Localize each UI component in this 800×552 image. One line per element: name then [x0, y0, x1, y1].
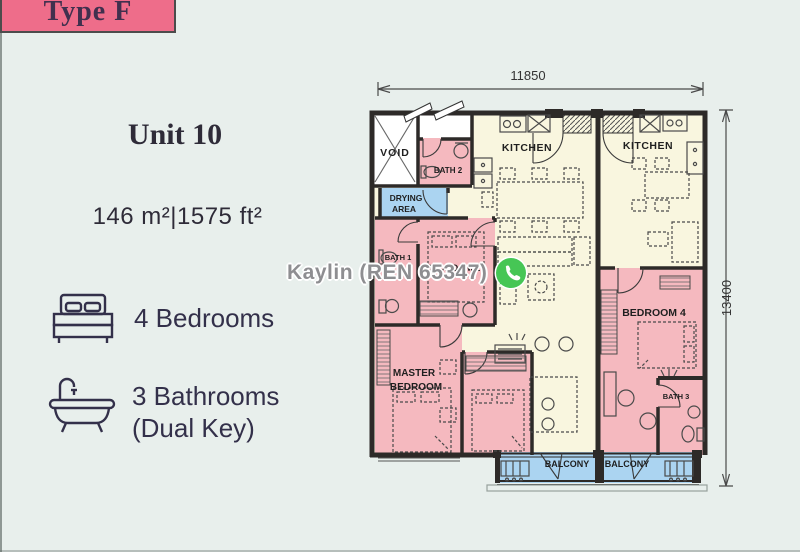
whatsapp-icon [493, 255, 529, 291]
room-label-balcony-left: BALCONY [545, 459, 590, 469]
room-label-drying-1: DRYING [390, 193, 423, 203]
agent-watermark-text: Kaylin (REN 65347) [287, 261, 487, 285]
room-label-balcony-right: BALCONY [605, 459, 650, 469]
room-label-master-1: MASTER [393, 368, 436, 379]
agent-watermark: Kaylin (REN 65347) [287, 255, 529, 291]
room-label-bedroom4: BEDROOM 4 [622, 307, 686, 319]
room-label-master-2: BEDROOM [390, 382, 442, 393]
dimension-width-label: 11850 [510, 68, 545, 83]
room-label-drying-2: AREA [392, 204, 416, 214]
room-label-kitchen-left: KITCHEN [502, 142, 552, 154]
dimension-height-label: 13400 [719, 280, 734, 316]
room-label-void: VOID [380, 147, 410, 159]
floorplan-page: { "colors": { "background": "#e8efec", "… [0, 0, 800, 552]
room-label-kitchen-right: KITCHEN [623, 140, 673, 152]
room-label-bath3: BATH 3 [663, 392, 690, 401]
room-label-bath2: BATH 2 [434, 166, 463, 175]
